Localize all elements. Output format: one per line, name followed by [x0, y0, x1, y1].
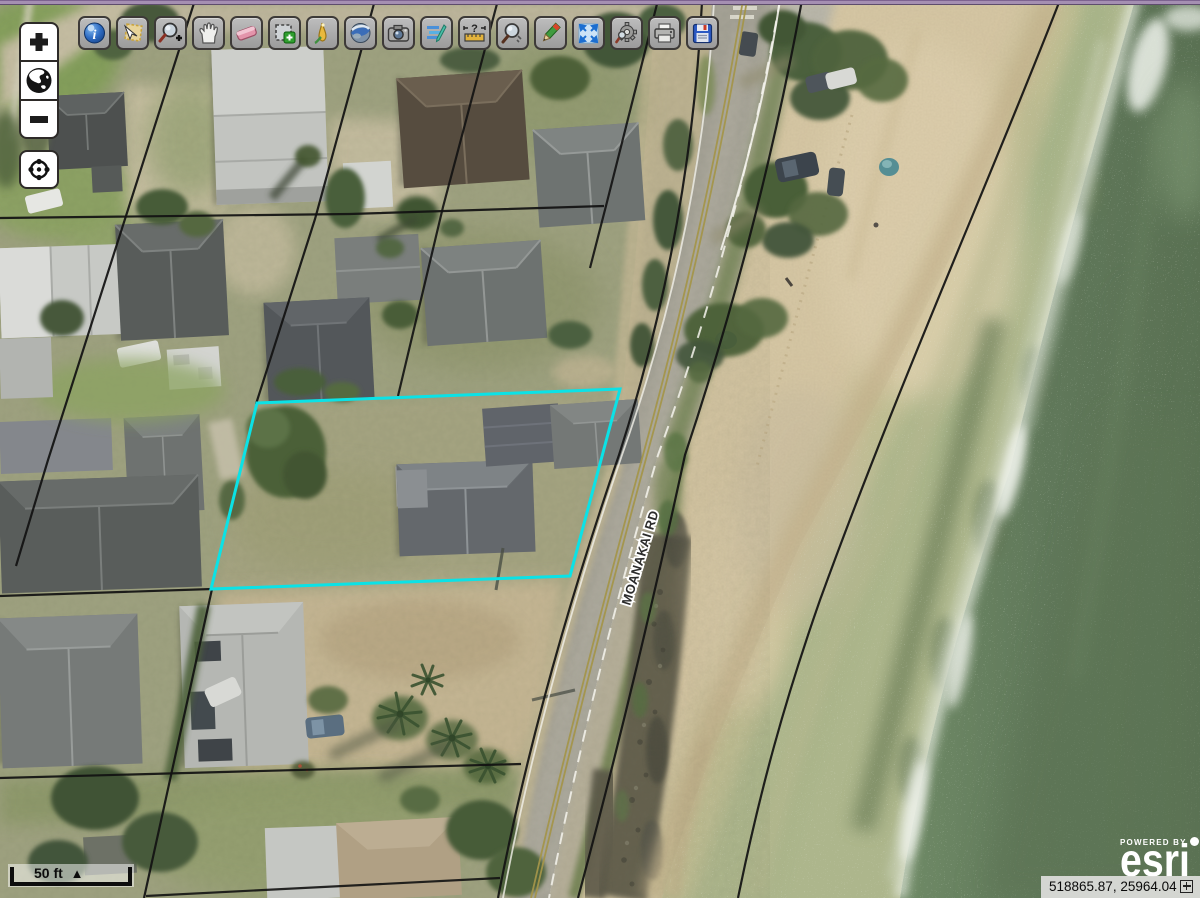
svg-text:i: i: [93, 28, 97, 43]
svg-text:?: ?: [471, 23, 478, 35]
